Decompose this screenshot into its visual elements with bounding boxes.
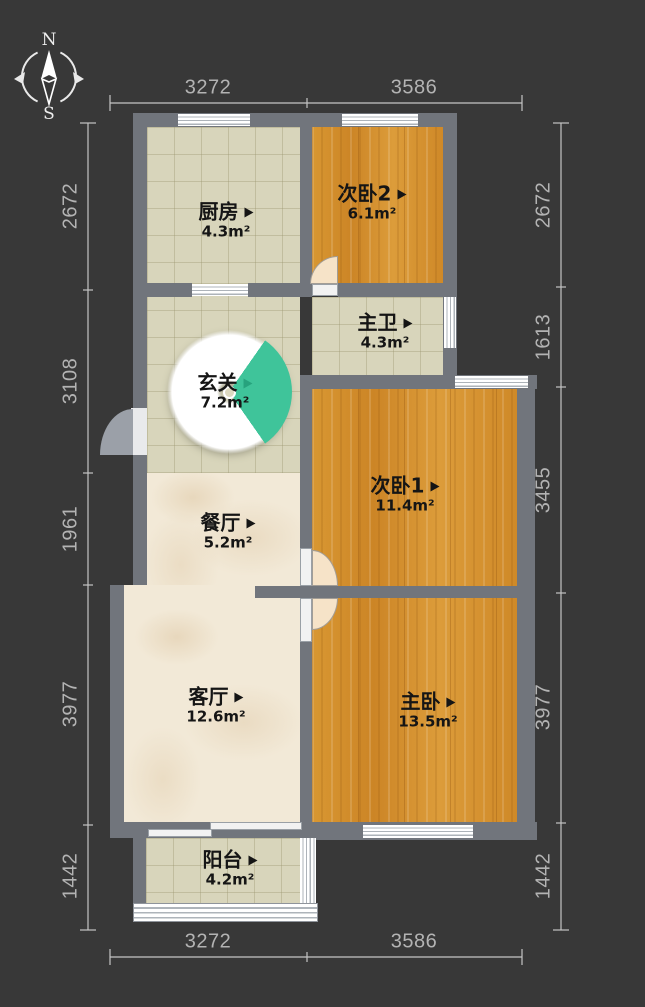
dim-left-5: 1442 <box>60 853 83 900</box>
compass-north-label: N <box>42 30 57 50</box>
dim-top-right: 3586 <box>391 77 438 100</box>
dim-right-4: 3977 <box>533 684 556 731</box>
dim-right-1: 2672 <box>533 182 556 229</box>
compass-icon: N S <box>8 28 90 120</box>
dim-right-3: 3455 <box>533 467 556 514</box>
dim-top-left: 3272 <box>185 77 232 100</box>
dim-bottom-left: 3272 <box>185 931 232 954</box>
floorplan-canvas: 厨房 4.3m² 次卧2 6.1m² 主卫 4.3m² 玄关 7.2m² 次卧1… <box>0 0 645 1007</box>
dim-right-2: 1613 <box>533 314 556 361</box>
dim-left-1: 2672 <box>60 183 83 230</box>
compass-needle-south <box>42 79 56 104</box>
dim-left-4: 3977 <box>60 681 83 728</box>
compass-needle-north <box>41 50 57 79</box>
dim-left-3: 1961 <box>60 506 83 553</box>
dim-right-5: 1442 <box>533 853 556 900</box>
compass-south-label: S <box>43 104 55 120</box>
dim-left-2: 3108 <box>60 358 83 405</box>
dim-bottom-right: 3586 <box>391 931 438 954</box>
